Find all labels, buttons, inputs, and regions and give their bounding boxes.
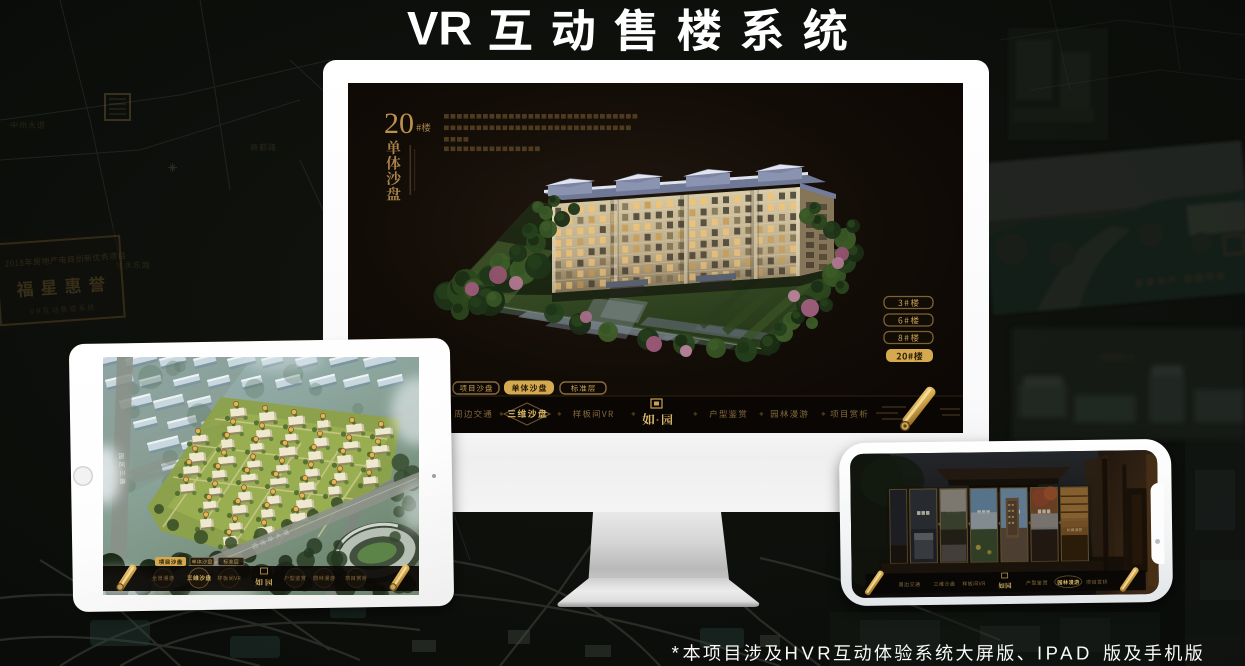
svg-text:IPAD: IPAD (1037, 643, 1093, 664)
svg-text:*: * (672, 644, 680, 665)
svg-text:HVR: HVR (785, 643, 835, 664)
svg-text:20: 20 (384, 107, 414, 140)
svg-text:VR: VR (407, 2, 472, 55)
